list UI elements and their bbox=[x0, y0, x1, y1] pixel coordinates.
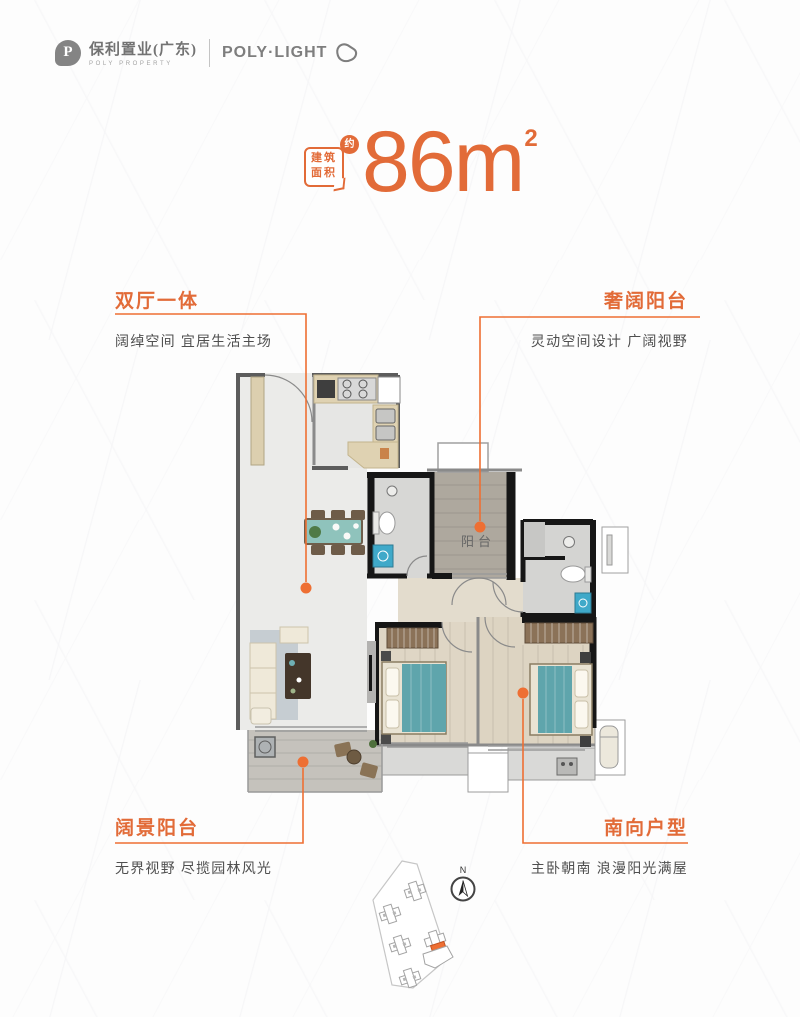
area-badge: 建筑 面积 bbox=[304, 147, 344, 187]
floor-plan: 阳台 bbox=[235, 365, 645, 795]
washer-icon bbox=[575, 593, 591, 613]
area-superscript: 2 bbox=[524, 125, 537, 153]
compass-icon: N bbox=[452, 865, 475, 901]
sink-icon bbox=[387, 486, 397, 496]
site-map: N bbox=[365, 855, 485, 1005]
callout-bottom-left: 阔景阳台 无界视野 尽揽园林风光 bbox=[115, 813, 395, 878]
tv-icon bbox=[367, 641, 376, 703]
ac-unit-icon bbox=[255, 737, 275, 757]
toilet-icon bbox=[561, 566, 585, 582]
balcony-label: 阳台 bbox=[461, 534, 495, 549]
dining-table-icon bbox=[305, 510, 365, 555]
brand-name-en: POLY PROPERTY bbox=[89, 61, 197, 67]
brand-name-block: 保利置业(广东) POLY PROPERTY bbox=[89, 38, 197, 67]
plectrum-icon bbox=[333, 39, 359, 67]
brand-header: P 保利置业(广东) POLY PROPERTY POLY·LIGHT bbox=[55, 38, 359, 67]
heater-icon bbox=[557, 758, 577, 775]
shoe-cabinet bbox=[251, 377, 264, 465]
washer-icon bbox=[373, 545, 393, 567]
lounge-chair-icon bbox=[600, 726, 618, 768]
compass-north-label: N bbox=[460, 865, 467, 875]
callout-desc: 阔绰空间 宜居生活主场 bbox=[115, 331, 395, 351]
callout-top-left: 双厅一体 阔绰空间 宜居生活主场 bbox=[115, 286, 395, 351]
area-headline: 建筑 面积 约 86m 2 bbox=[304, 118, 538, 206]
brand-divider bbox=[209, 39, 210, 67]
callout-title: 南向户型 bbox=[408, 813, 688, 840]
callout-desc: 灵动空间设计 广阔视野 bbox=[408, 331, 688, 351]
strip-master bbox=[508, 748, 595, 780]
balcony-top-area bbox=[432, 472, 511, 578]
callout-desc: 无界视野 尽揽园林风光 bbox=[115, 858, 395, 878]
wardrobe-icon bbox=[387, 628, 438, 648]
toilet-icon bbox=[379, 512, 395, 534]
brand-product-name: POLY·LIGHT bbox=[222, 44, 327, 62]
callout-title: 双厅一体 bbox=[115, 286, 395, 313]
poly-logo-icon: P bbox=[55, 40, 81, 66]
strip-bedroom2 bbox=[382, 745, 468, 775]
sink-icon bbox=[564, 537, 575, 548]
poster-canvas: P 保利置业(广东) POLY PROPERTY POLY·LIGHT 建筑 面… bbox=[0, 0, 800, 1017]
approx-circle: 约 bbox=[340, 135, 359, 154]
area-value: 86m bbox=[362, 118, 523, 206]
fridge-icon bbox=[378, 377, 400, 403]
callout-top-right: 奢阔阳台 灵动空间设计 广阔视野 bbox=[408, 286, 688, 351]
callout-title: 阔景阳台 bbox=[115, 813, 395, 840]
balcony-ledge bbox=[438, 443, 488, 472]
bedroom-2-furniture bbox=[381, 628, 446, 744]
master-bedroom-furniture bbox=[525, 623, 593, 747]
badge-line1: 建筑 bbox=[306, 151, 342, 166]
callout-title: 奢阔阳台 bbox=[408, 286, 688, 313]
stove-icon bbox=[317, 380, 335, 398]
brand-name-cn: 保利置业(广东) bbox=[89, 38, 197, 59]
kitchen-sink-icon bbox=[376, 409, 395, 423]
planter-nub bbox=[468, 753, 508, 792]
badge-line2: 面积 bbox=[306, 166, 342, 181]
ac-platform bbox=[602, 527, 628, 573]
